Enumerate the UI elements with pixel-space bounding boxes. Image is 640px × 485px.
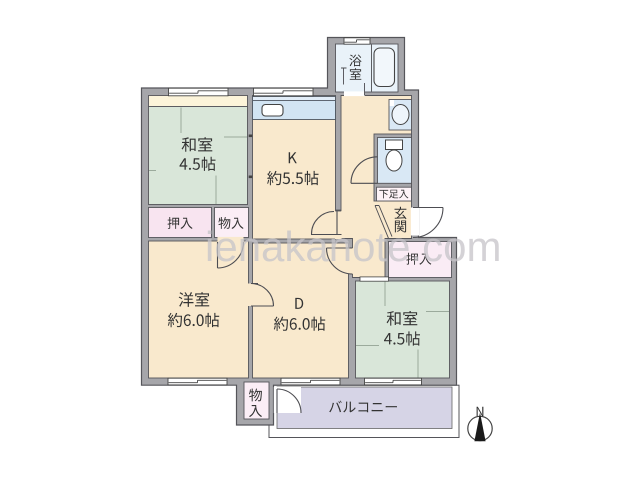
svg-text:ienakanote.com: ienakanote.com — [205, 223, 502, 270]
